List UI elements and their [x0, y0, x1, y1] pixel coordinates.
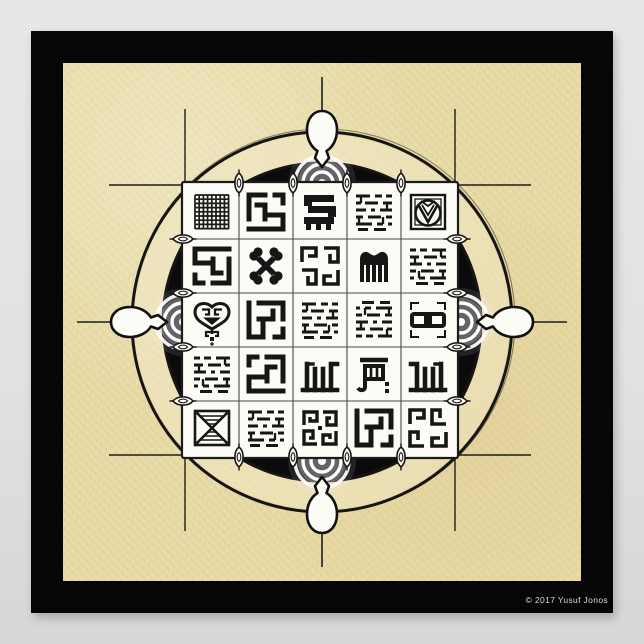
crop-mark-top-left [109, 109, 191, 191]
crop-mark-top-right [449, 109, 531, 191]
crop-mark-bottom-right [449, 449, 531, 531]
wall-background: © 2017 Yusuf Jonos [0, 0, 644, 644]
mandala-artwork [0, 0, 644, 644]
crop-mark-bottom-left [109, 449, 191, 531]
symbol-grid [182, 182, 458, 458]
